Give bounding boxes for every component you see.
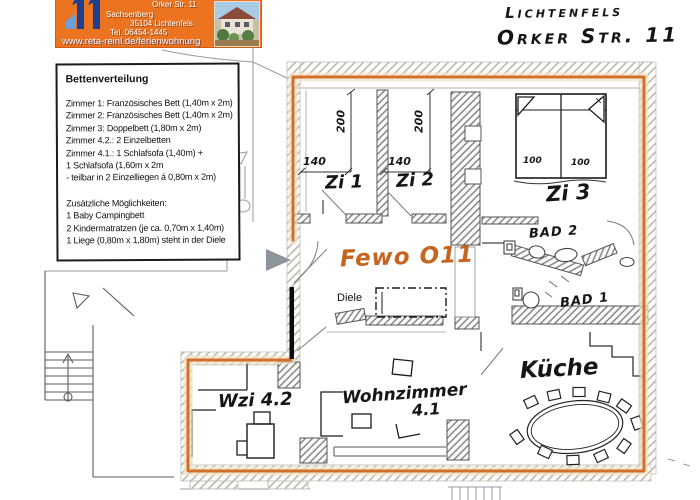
header-city: Lichtenfels xyxy=(505,2,623,22)
legend-line: Zusätzliche Möglichkeiten: xyxy=(66,196,234,209)
room-label-zi3: Zi 3 xyxy=(545,179,591,206)
banner-city: 35104 Lichtenfels xyxy=(130,19,193,28)
reta-reinl-11-logo-icon xyxy=(62,0,106,31)
banner-website-link[interactable]: www.reta-reinl.de/ferienwohnung xyxy=(62,36,200,47)
kitchen-table xyxy=(510,388,643,465)
house-photo xyxy=(214,1,260,47)
legend-line: - teilbar in 2 Einzelliegen á 0,80m x 2m… xyxy=(66,171,234,184)
dim-zi2-width: 140 xyxy=(388,155,411,168)
floorplan-page: Orker Str. 11 Sachsenberg 35104 Lichtenf… xyxy=(0,0,700,500)
dim-zi1-width: 140 xyxy=(303,155,326,168)
legend-line: 1 Baby Campingbett xyxy=(66,209,234,222)
room-label-kueche: Küche xyxy=(519,354,599,384)
dim-zi1-depth: 200 xyxy=(335,107,348,137)
legend-line: 1 Liege (0,80m x 1,80m) steht in der Die… xyxy=(66,234,234,247)
entrance-wall xyxy=(290,287,295,359)
legend-line: Zimmer 4.2.: 2 Einzelbetten xyxy=(66,134,234,147)
bed-distribution-legend: Bettenverteilung Zimmer 1: Französisches… xyxy=(55,63,240,262)
legend-line: Zimmer 1: Französisches Bett (1,40m x 2m… xyxy=(66,97,234,110)
dim-zi3-left: 100 xyxy=(523,156,542,166)
header-street: Orker Str. 11 xyxy=(497,22,679,49)
room-label-wzi42: Wzi 4.2 xyxy=(218,389,293,413)
room-label-wohnzimmer-nr: 4.1 xyxy=(411,399,441,420)
legend-line: Zimmer 3: Doppelbett (1,80m x 2m) xyxy=(66,121,234,134)
dim-zi3-right: 100 xyxy=(571,158,590,168)
legend-line: Zimmer 4.1.: 1 Schlafsofa (1,40m) + xyxy=(66,146,234,159)
legend-title: Bettenverteilung xyxy=(66,73,234,86)
legend-line: 2 Kindermatratzen (je ca. 0,70m x 1,40m) xyxy=(66,221,234,234)
room-label-zi2: Zi 2 xyxy=(395,169,434,192)
banner-district: Sachsenberg xyxy=(106,10,153,19)
room-label-diele: Diele xyxy=(337,292,362,304)
company-banner: Orker Str. 11 Sachsenberg 35104 Lichtenf… xyxy=(55,0,262,48)
legend-line: Zimmer 2: Französisches Bett (1,40m x 2m… xyxy=(66,109,234,122)
legend-line: 1 Schlafsofa (1,60m x 2m xyxy=(66,159,234,172)
apartment-label: Fewo O11 xyxy=(340,242,475,273)
dim-zi2-depth: 200 xyxy=(413,107,426,137)
room-label-zi1: Zi 1 xyxy=(325,171,364,193)
banner-street: Orker Str. 11 xyxy=(152,0,197,9)
interior-walls xyxy=(278,90,648,463)
staircase xyxy=(45,271,174,477)
